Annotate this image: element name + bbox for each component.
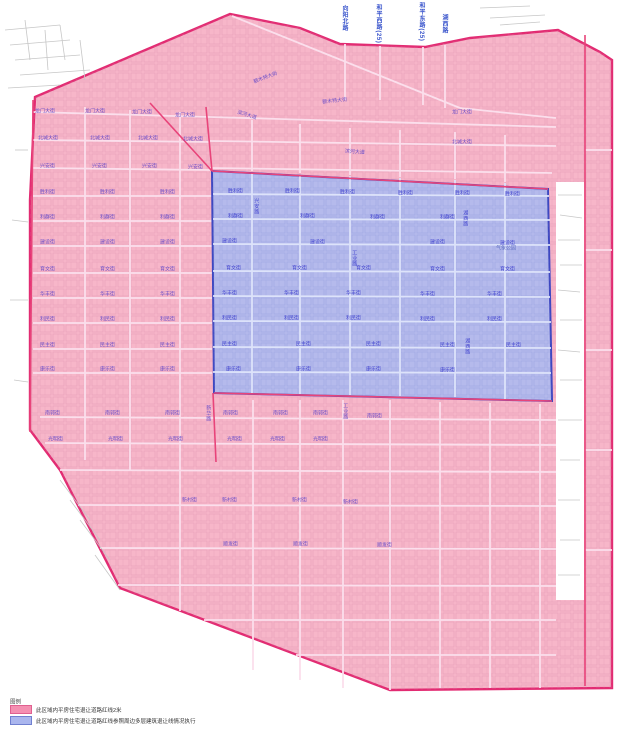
legend-title: 图例 — [10, 697, 184, 701]
planning-map-page: 向阳北路和平西路(25)和平东路(25)湖西路额木特大街额木特大街滨河大道滨河大… — [0, 0, 624, 739]
legend-item-label: 此区域内平房住宅退让道路红线参照周边多层建筑退让线情况执行 — [36, 716, 196, 724]
legend-item-pink-zone: 此区域内平房住宅退让道路红线2米 — [10, 704, 326, 715]
legend: 图例 此区域内平房住宅退让道路红线2米 此区域内平房住宅退让道路红线参照周边多层… — [10, 697, 326, 726]
legend-item-blue-zone: 此区域内平房住宅退让道路红线参照周边多层建筑退让线情况执行 — [10, 715, 326, 726]
legend-swatch-pink — [10, 705, 32, 714]
legend-item-label: 此区域内平房住宅退让道路红线2米 — [36, 705, 122, 713]
legend-swatch-blue — [10, 716, 32, 725]
map-canvas — [0, 0, 624, 739]
blue-zone-texture — [212, 171, 552, 401]
unzoned-gap — [556, 182, 584, 600]
